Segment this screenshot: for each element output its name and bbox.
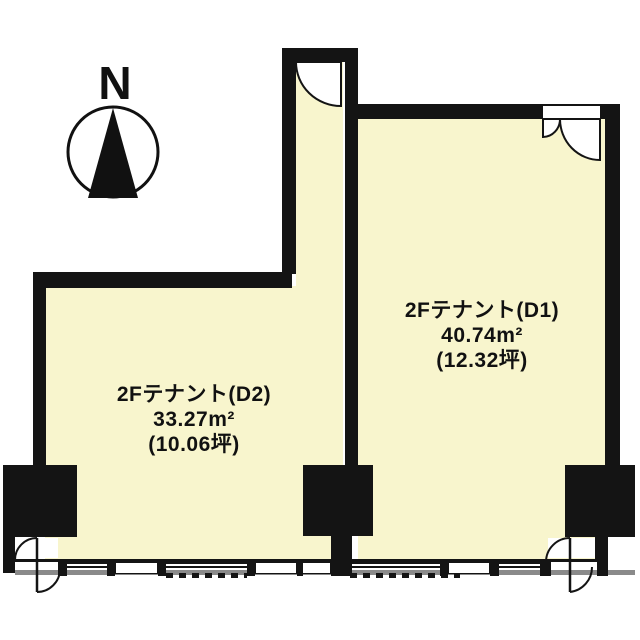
floor-plan: N 2Fテナント(D1) 40.74m² (12.32坪) 2Fテナント(D2)…: [0, 0, 640, 640]
room-d1-label: 2Fテナント(D1) 40.74m² (12.32坪): [358, 298, 606, 373]
door-swing-bottom-right-out: [570, 567, 592, 592]
door-swing-d1-child: [543, 119, 560, 137]
north-compass: [68, 107, 158, 198]
room-d2-tsubo: (10.06坪): [45, 432, 343, 457]
room-d2-name: 2Fテナント(D2): [45, 382, 343, 407]
room-d1-tsubo: (12.32坪): [358, 348, 606, 373]
door-swing-d1-main: [560, 119, 600, 160]
room-d1-name: 2Fテナント(D1): [358, 298, 606, 323]
compass-needle-icon: [88, 108, 138, 198]
door-vestibule-right: [548, 538, 595, 558]
north-label: N: [75, 60, 155, 106]
room-d2-label: 2Fテナント(D2) 33.27m² (10.06坪): [45, 382, 343, 457]
door-swing-corridor: [296, 62, 341, 106]
room-d1-area: 40.74m²: [358, 323, 606, 348]
door-swing-bottom-left-out: [37, 569, 60, 592]
room-d2-area: 33.27m²: [45, 407, 343, 432]
